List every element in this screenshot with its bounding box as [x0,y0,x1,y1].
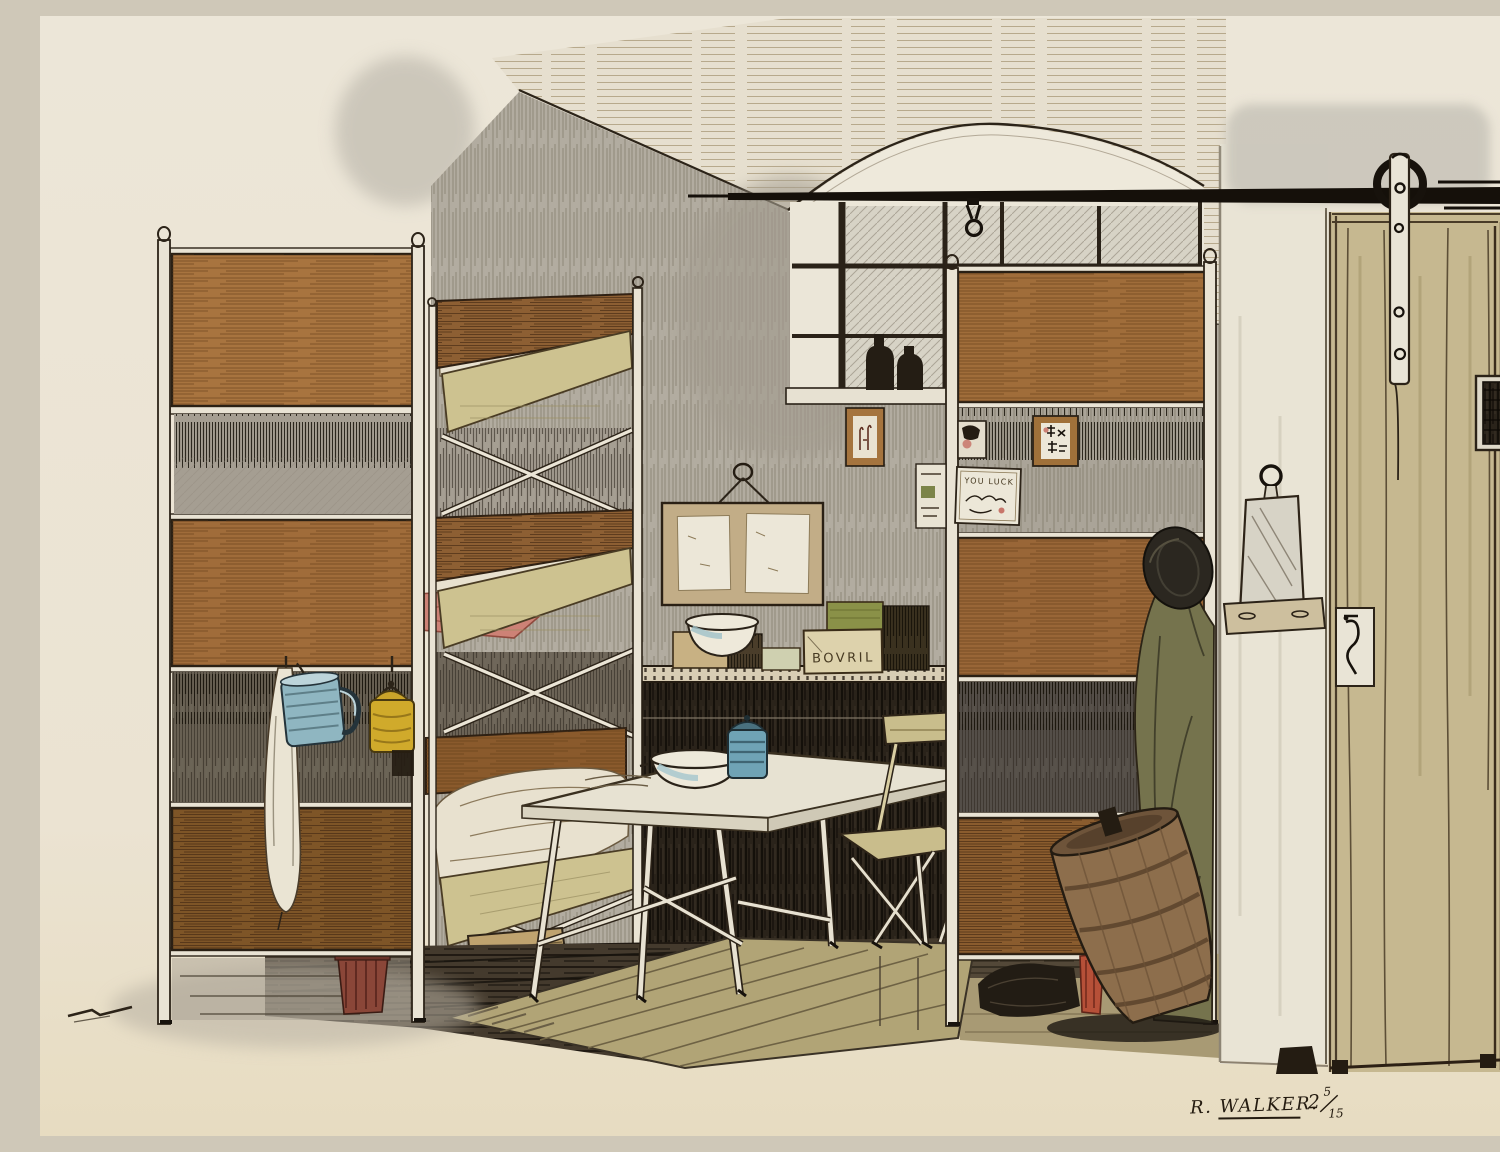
signature-fraction-denominator: 15 [1328,1106,1344,1121]
partition-post [412,246,424,1022]
pillar [1220,144,1328,1074]
pillar-foot [1276,1046,1318,1074]
luck-card-label: YOU LUCK [963,476,1014,487]
clay-pot [335,952,390,1014]
bed-post-rear [429,306,436,958]
artwork: Pen-and-ink and watercolour sketch of a … [40,16,1500,1136]
signature-number: 2 [1307,1091,1321,1113]
bed-post-front [633,288,642,978]
luck-card: YOU LUCK [955,467,1021,525]
partition-post [946,268,958,1026]
signature-fraction-numerator: 5 [1323,1085,1331,1099]
partition-post [158,240,170,1024]
artwork-canvas: Pen-and-ink and watercolour sketch of a … [40,16,1500,1136]
door-latch [1336,608,1374,686]
bovril-box: BOVRIL [804,629,883,673]
wall-poster [916,464,946,528]
sliding-door [1330,212,1500,1074]
pinned-paper [745,513,809,593]
framed-picture [846,408,884,466]
bovril-label: BOVRIL [812,650,875,666]
door-vent [1476,376,1500,450]
calligraphy-poster [1033,416,1078,466]
small-photo [958,421,986,458]
pinned-paper [677,516,730,591]
